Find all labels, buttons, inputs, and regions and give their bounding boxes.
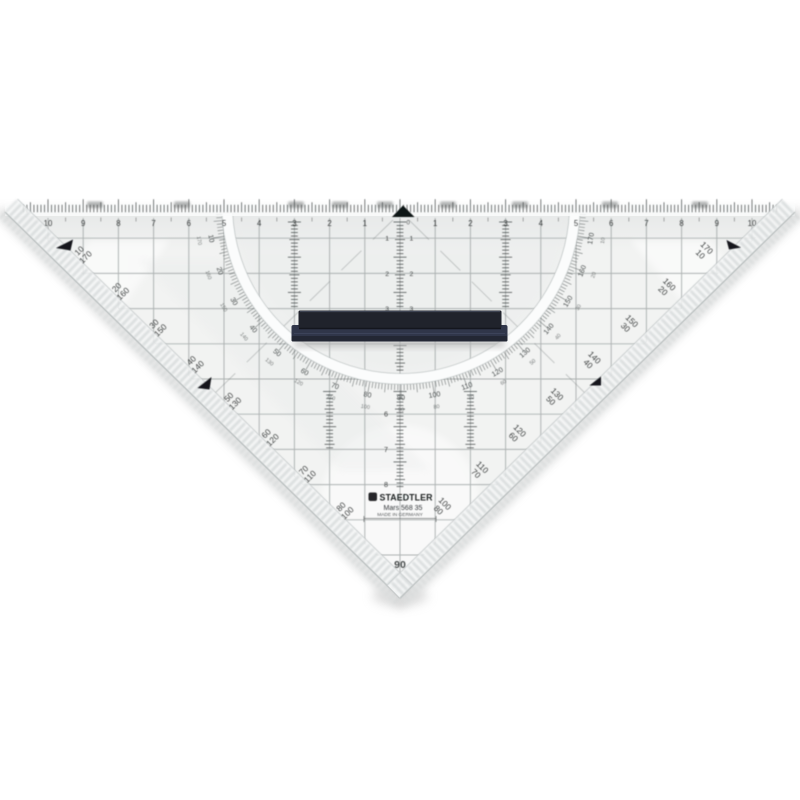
svg-text:6: 6	[609, 219, 613, 228]
svg-text:7: 7	[644, 219, 648, 228]
svg-text:4: 4	[257, 219, 262, 228]
svg-text:8: 8	[679, 219, 683, 228]
svg-text:MADE IN GERMANY: MADE IN GERMANY	[377, 512, 423, 518]
svg-text:4: 4	[539, 219, 544, 228]
svg-text:10: 10	[206, 234, 215, 243]
svg-text:2: 2	[327, 219, 331, 228]
svg-text:1: 1	[363, 219, 367, 228]
svg-text:3: 3	[292, 219, 296, 228]
svg-text:STAEDTLER: STAEDTLER	[380, 493, 434, 503]
svg-text:80: 80	[363, 390, 372, 399]
svg-text:2: 2	[468, 219, 472, 228]
svg-text:80: 80	[433, 404, 440, 411]
svg-text:6: 6	[187, 219, 191, 228]
svg-text:1: 1	[385, 236, 389, 243]
svg-text:10: 10	[600, 237, 607, 244]
svg-text:3: 3	[503, 219, 507, 228]
svg-text:9: 9	[81, 219, 85, 228]
svg-text:7: 7	[384, 445, 388, 454]
svg-text:2: 2	[410, 271, 414, 278]
svg-text:Mars 568 35: Mars 568 35	[384, 505, 423, 512]
svg-text:1: 1	[410, 236, 414, 243]
svg-text:8: 8	[116, 219, 120, 228]
svg-text:90: 90	[394, 559, 406, 571]
svg-text:1: 1	[433, 219, 437, 228]
svg-text:7: 7	[151, 219, 155, 228]
svg-text:5: 5	[574, 219, 579, 228]
svg-text:6: 6	[384, 410, 388, 419]
svg-text:2: 2	[385, 271, 389, 278]
svg-text:8: 8	[384, 480, 388, 489]
svg-text:9: 9	[715, 219, 719, 228]
svg-text:5: 5	[222, 219, 227, 228]
